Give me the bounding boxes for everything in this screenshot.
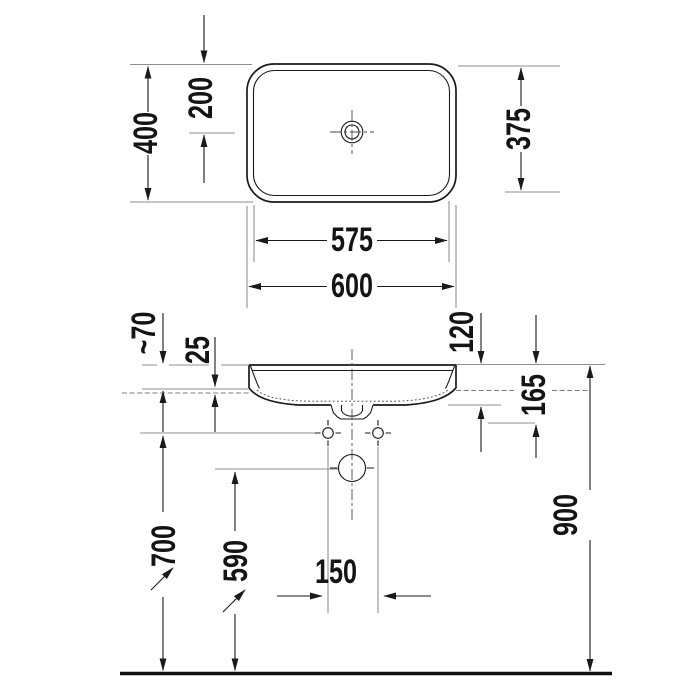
dim-200: 200 [182,15,220,183]
dim-165: 165 [515,315,553,458]
dim-590: 590 [217,472,255,671]
dim-200-label: 200 [182,77,220,119]
basin-profile [249,365,456,419]
dim-600: 600 [249,267,454,305]
dim-575-label: 575 [331,221,373,259]
dim-70-label: ~70 [125,312,163,355]
adjustable-height-arrow-700 [151,568,173,590]
dim-25-label: 25 [179,336,217,364]
dim-25: 25 [179,336,217,432]
dim-600-label: 600 [331,267,373,305]
fixing-hole-left [315,420,341,446]
washbasin-dimension-drawing: 400 200 375 575 600 [0,0,700,700]
dim-150-label: 150 [315,553,357,591]
tap-hole [330,110,374,154]
dim-70: ~70 [125,312,163,432]
dim-900: 900 [547,366,590,671]
basin-outer-rim-plan [247,64,456,202]
dim-400: 400 [127,67,165,201]
adjustable-height-arrow-590 [223,590,245,612]
dim-590-label: 590 [217,540,255,582]
basin-inner-surface-hidden [257,390,448,401]
basin-inner-rim-plan [254,71,450,196]
dim-575: 575 [256,221,447,259]
dim-375-label: 375 [500,108,538,150]
dim-165-label: 165 [515,374,553,416]
dim-700: 700 [145,436,183,671]
elevation-view: ~70 25 120 165 900 [120,311,612,673]
dim-900-label: 900 [547,494,585,536]
plan-view: 400 200 375 575 600 [127,15,560,308]
dim-700-label: 700 [145,525,183,567]
fixing-hole-right [365,420,391,446]
technical-drawing-canvas: 400 200 375 575 600 [0,0,700,700]
dim-375: 375 [500,68,538,190]
dim-120-label: 120 [443,311,481,353]
dim-150: 150 [277,553,431,596]
dim-400-label: 400 [127,112,165,154]
